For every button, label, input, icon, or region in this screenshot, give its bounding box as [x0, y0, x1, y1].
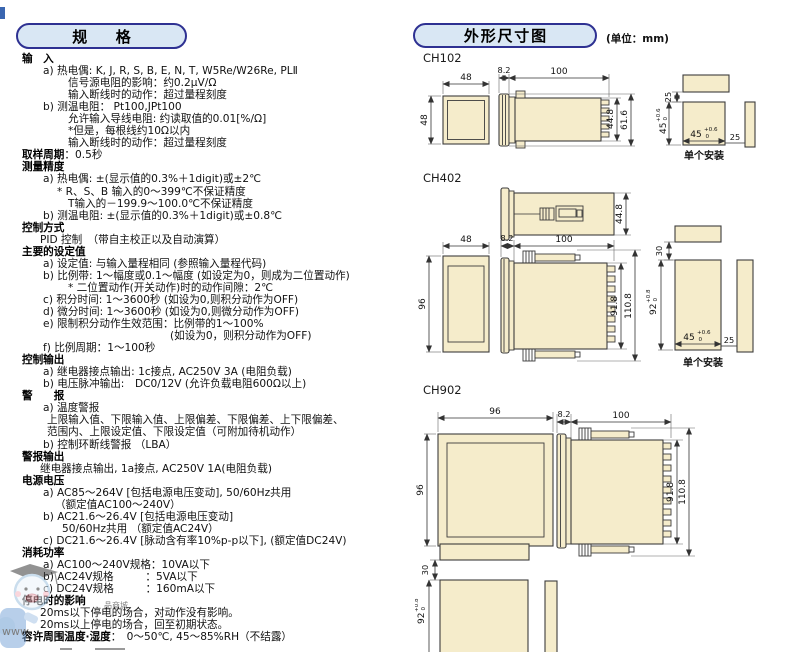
spec-line: b) 测温电阻: ±(显示值的0.3%＋1digit)或±0.8℃: [22, 210, 410, 222]
spec-line: 警报输出: [22, 451, 410, 463]
svg-text:0: 0: [421, 607, 427, 611]
spec-line: 范围内、上限设定值、下限设定值（可附加待机动作）: [22, 426, 410, 438]
svg-text:92: 92: [649, 304, 659, 315]
ch402-cutout-width-dim: 45: [683, 333, 694, 343]
ch402-dimension-drawing: CH402 44.8 48 96: [415, 170, 793, 382]
spec-line: b) 比例带: 1～幅度或0.1～幅度 (如设定为0，则成为二位置动作): [22, 270, 410, 282]
spec-line: 信号源电阻的影响：约0.2μV/Ω: [22, 77, 410, 89]
svg-text:92: 92: [417, 613, 427, 624]
ch902-dimension-drawing: CH902 96 96: [415, 382, 793, 652]
dimensions-section-header: 外形尺寸图: [413, 23, 597, 48]
svg-text:0: 0: [663, 117, 669, 121]
spec-line: b) 控制环断线警报 （LBA）: [22, 439, 410, 451]
ch902-front-height: 96: [416, 484, 426, 496]
spec-line: d) 微分时间: 1～3600秒 (如设为0,则微分动作为OFF): [22, 306, 410, 318]
spec-line: b) AC24V规格 ：5VA以下: [22, 571, 410, 583]
ch102-cutout-height-dim: 45 +0.6 0: [656, 108, 669, 134]
ch102-front-view: 48 48: [420, 73, 489, 144]
ch902-front-view: 96 96: [416, 407, 553, 546]
spec-line: c) DC24V规格 ：160mA以下: [22, 583, 410, 595]
ch902-inner-height: 91.8: [666, 482, 676, 502]
ch102-body-depth: 100: [550, 67, 567, 77]
spec-line: b) 电压脉冲输出: DC0/12V (允许负载电阻600Ω以上): [22, 378, 410, 390]
ch902-cutout-gap-top: 30: [420, 565, 430, 575]
ch402-body-depth: 100: [555, 235, 572, 245]
ch402-label: CH402: [423, 171, 462, 185]
spec-line: c) DC21.6～26.4V [脉动含有率10%p-p以下], (额定值DC2…: [22, 535, 410, 547]
spec-line: 控制输出: [22, 354, 410, 366]
ch102-dimension-drawing: CH102 48 48 8.2 100: [415, 50, 793, 170]
spec-line: a) AC100～240V规格：10VA以下: [22, 559, 410, 571]
ch102-cutout-gap-top: 25: [663, 92, 673, 102]
spec-line: 主要的设定值: [22, 246, 410, 258]
svg-text:45: 45: [659, 123, 669, 134]
ch402-cutout-gap-right: 25: [724, 335, 734, 345]
svg-text:+0.8: +0.8: [646, 289, 652, 303]
cut-off-text-artifact: [60, 648, 72, 650]
spec-line: a) 温度警报: [22, 402, 410, 414]
ch902-front-width: 96: [489, 407, 501, 417]
ch102-inner-height: 44.8: [606, 109, 616, 129]
spec-line: 控制方式: [22, 222, 410, 234]
spec-line: 输入断线时的动作：超过量程刻度: [22, 89, 410, 101]
spec-line: 允许输入导线电阻: 约读取值的0.01[%/Ω]: [22, 113, 410, 125]
dimensions-title: 外形尺寸图: [462, 25, 548, 46]
spec-section-header: 规格: [16, 23, 187, 49]
spec-line: 上限输入值、下限输入值、上限偏差、下限偏差、上下限偏差、: [22, 414, 410, 426]
spec-line: 测量精度: [22, 161, 410, 173]
spec-line: * R、S、B 输入的0～399℃不保证精度: [22, 186, 410, 198]
spec-line: PID 控制 （带自主校正以及自动演算）: [22, 234, 410, 246]
svg-text:0: 0: [706, 134, 710, 140]
ch402-front-width: 48: [460, 235, 472, 245]
spec-line: 警 报: [22, 390, 410, 402]
spec-line: (如设为0，则积分动作为OFF): [22, 330, 410, 342]
spec-line: 电源电压: [22, 475, 410, 487]
svg-text:0: 0: [653, 298, 659, 302]
ch402-front-height: 96: [418, 298, 428, 310]
spec-line: a) 热电偶: ±(显示值的0.3%＋1digit)或±2℃: [22, 173, 410, 185]
ch402-outer-height: 110.8: [624, 293, 634, 319]
ch102-outer-height: 61.6: [620, 110, 630, 130]
datasheet-page: 规格 输 入a) 热电偶: K, J, R, S, B, E, N, T, W5…: [0, 0, 793, 652]
ch402-panel-cutout: 30 92 +0.8 0 45 +0.6 0 25 单个安装: [646, 226, 753, 369]
svg-text:+0.6: +0.6: [697, 330, 711, 336]
spec-title: 规格: [44, 26, 160, 47]
spec-line: 取样周期：0.5秒: [22, 149, 410, 161]
spec-line: 20ms以下停电的场合，对动作没有影响。: [22, 607, 410, 619]
ch902-label: CH902: [423, 383, 462, 397]
spec-line: f) 比例周期：1～100秒: [22, 342, 410, 354]
ch402-inner-height: 91.8: [610, 296, 620, 316]
ch102-label: CH102: [423, 51, 462, 65]
spec-line: 容许周围温度·湿度： 0～50℃, 45～85%RH（不结露）: [22, 631, 410, 643]
ch402-top-width: 44.8: [615, 204, 625, 224]
ch402-bezel-depth: 8.2: [500, 233, 513, 243]
scan-artifact: [0, 7, 5, 19]
spec-lines: 输 入a) 热电偶: K, J, R, S, B, E, N, T, W5Re/…: [22, 53, 410, 643]
ch402-cutout-caption: 单个安装: [683, 356, 723, 369]
spec-line: （额定值AC100～240V）: [22, 499, 410, 511]
ch902-body-depth: 100: [612, 411, 629, 421]
ch402-cutout-gap-top: 30: [654, 246, 664, 256]
cut-off-text-artifact: [95, 648, 125, 650]
spec-line: 20ms以上停电的场合，回至初期状态。: [22, 619, 410, 631]
ch902-bezel-depth: 8.2: [557, 409, 570, 419]
spec-line: 输入断线时的动作：超过量程刻度: [22, 137, 410, 149]
spec-line: b) 测温电阻： Pt100,JPt100: [22, 101, 410, 113]
ch902-cutout-height-dim: 92 +0.8 0: [415, 598, 427, 624]
ch402-top-view: 44.8: [501, 188, 631, 240]
spec-line: c) 积分时间: 1～3600秒 (如设为0,则积分动作为OFF): [22, 294, 410, 306]
ch102-cutout-caption: 单个安装: [684, 149, 724, 162]
ch902-side-view: 8.2 100 91.8 110.8: [557, 409, 695, 556]
ch902-panel-cutout: 30 92 +0.8 0: [415, 544, 557, 652]
ch102-front-height: 48: [420, 114, 430, 126]
spec-line: a) 设定值: 与输入量程相同 (参照输入量程代码): [22, 258, 410, 270]
spec-line: 继电器接点输出, 1a接点, AC250V 1A(电阻负载): [22, 463, 410, 475]
spec-line: 输 入: [22, 53, 410, 65]
spec-line: a) 热电偶: K, J, R, S, B, E, N, T, W5Re/W26…: [22, 65, 410, 77]
ch102-panel-cutout: 25 45 +0.6 0 45 +0.6 0 25 单个安装: [656, 75, 755, 162]
ch102-side-view: 8.2 100 44.8 61.6: [497, 65, 635, 148]
spec-line: T输入的－199.9～100.0℃不保证精度: [22, 198, 410, 210]
spec-line: * 二位置动作(开关动作)时的动作间隙：2℃: [22, 282, 410, 294]
ch402-cutout-height-dim: 92 +0.8 0: [646, 289, 659, 315]
ch102-front-width: 48: [460, 73, 472, 83]
svg-text:+0.8: +0.8: [415, 598, 420, 612]
svg-text:+0.6: +0.6: [704, 127, 718, 133]
spec-line: 50/60Hz共用 （额定值AC24V）: [22, 523, 410, 535]
spec-line: 停电时的影响: [22, 595, 410, 607]
spec-line: 消耗功率: [22, 547, 410, 559]
ch902-outer-height: 110.8: [678, 479, 688, 505]
ch402-side-view: 8.2 100 91.8 110.8: [500, 233, 641, 361]
spec-line: b) AC21.6～26.4V [包括电源电压变动]: [22, 511, 410, 523]
spec-line: *但是，每根线约10Ω以内: [22, 125, 410, 137]
spec-line: a) 继电器接点输出: 1c接点, AC250V 3A (电阻负载): [22, 366, 410, 378]
ch102-bezel-depth: 8.2: [497, 65, 510, 75]
ch402-front-view: 48 96: [418, 235, 489, 352]
svg-text:+0.6: +0.6: [656, 108, 662, 122]
spec-line: e) 限制积分动作生效范围：比例带的1～100%: [22, 318, 410, 330]
svg-text:0: 0: [699, 337, 703, 343]
spec-line: a) AC85～264V [包括电源电压变动], 50/60Hz共用: [22, 487, 410, 499]
unit-note: (单位：mm): [606, 31, 669, 46]
ch102-cutout-gap-right: 25: [730, 132, 740, 142]
ch102-cutout-width-dim: 45: [690, 130, 701, 140]
